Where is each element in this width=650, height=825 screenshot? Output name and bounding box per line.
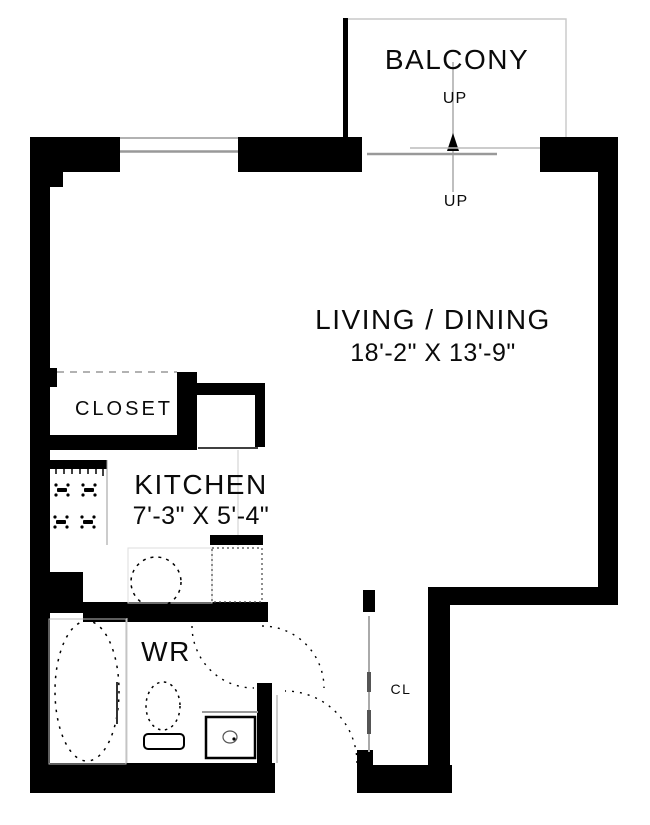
cl-slide-door-panel-1 [367,672,371,692]
wall-column-top [177,383,265,395]
wall-bottom-left [30,763,275,793]
living-dims-label: 18'-2" X 13'-9" [350,341,515,366]
kitchen-label: KITCHEN [134,471,267,499]
balcony-left-wall [343,18,348,137]
stove-counter-edge [50,460,107,469]
wall-column-right [255,383,265,447]
bathtub-icon [55,621,119,761]
wall-cl-door-stub-bottom [357,750,373,767]
entry-door-arc [285,691,357,763]
wall-top-a [30,137,120,172]
sink-circle [131,557,181,607]
vanity-drain-dot [232,737,235,740]
balcony-outline [343,18,566,137]
wall-living-bottom-right [428,587,618,605]
fridge-dashed-box [212,548,262,602]
stove-burners-icon [53,483,96,528]
balcony-rail-line [345,19,566,137]
wall-closet-bottom [30,435,190,450]
hall-closet-door [277,616,371,763]
balcony-label: BALCONY [385,46,529,74]
wall-cl-right [428,587,450,792]
toilet-bowl-icon [146,682,180,730]
balcony-up-label: UP [443,91,467,107]
sink-counter-frame [128,548,212,603]
stair-arrow [447,62,459,192]
toilet-tank-icon [144,734,184,749]
kitchen-dims-label: 7'-3" X 5'-4" [133,504,270,529]
living-room-label: LIVING / DINING [315,306,551,334]
wall-wr-right [257,683,272,765]
wall-right [598,137,618,605]
cl-slide-door-panel-2 [367,710,371,734]
tub-frame [49,619,126,764]
living-up-label: UP [444,194,468,210]
stove-counter-ticks [56,469,103,476]
wall-kitchen-stub [30,572,83,613]
closet-label: CLOSET [75,399,173,419]
hall-closet-label: CL [391,682,412,696]
wall-left [30,137,50,793]
wall-cl-door-stub-top [363,590,375,612]
wr-door-arc-outer [262,626,324,688]
wall-closet-stub [48,368,57,387]
vanity-box [206,717,255,758]
floor-plan: BALCONY UP UP LIVING / DINING 18'-2" X 1… [0,0,650,825]
washroom-label: WR [141,638,191,666]
fridge-counter-edge [210,535,263,545]
walls [30,137,618,793]
wr-door-arc-inner [192,626,254,688]
wall-top-b [238,137,362,172]
